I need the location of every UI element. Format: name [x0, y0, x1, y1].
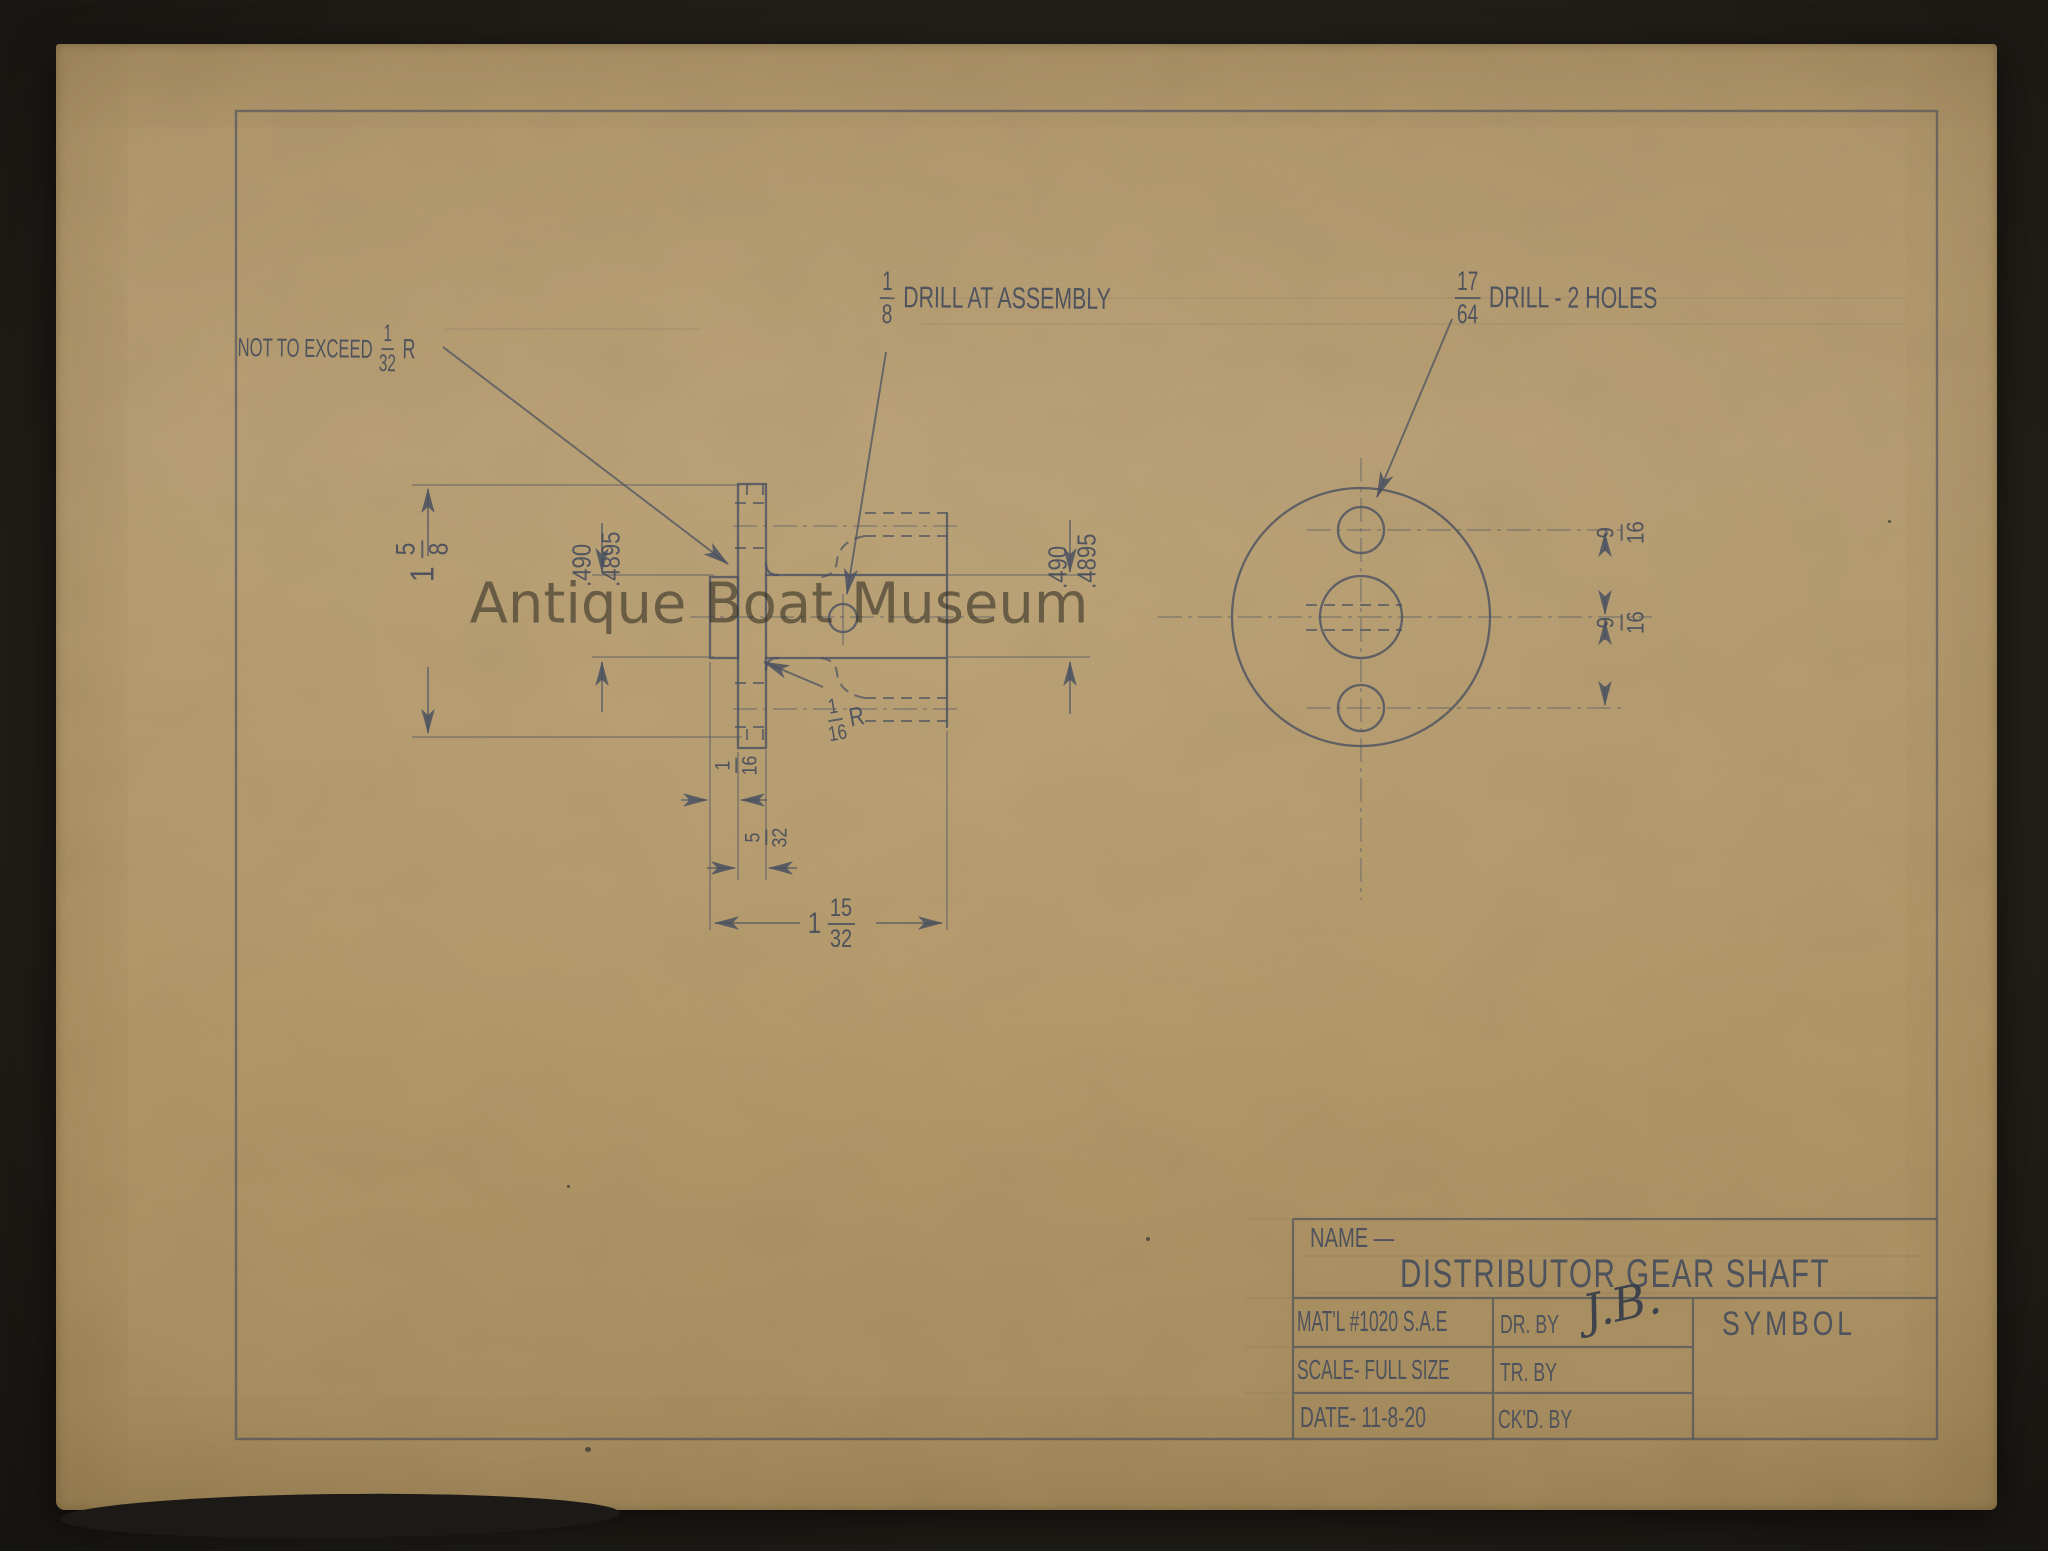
dim-flange-thickness: 5 32	[741, 828, 790, 848]
title-block-symbol-label: SYMBOL	[1722, 1305, 1856, 1344]
end-view	[1158, 458, 1652, 900]
fraction-9-16-lower: 9 16	[1595, 611, 1649, 634]
title-block-name-label: NAME —	[1310, 1222, 1394, 1254]
dim-hole-offset-lower: 9 16	[1593, 611, 1649, 634]
scanned-drawing: NOT TO EXCEED 1 32 R 1 8 DRILL AT ASSEMB…	[0, 0, 2048, 1551]
dim-flange-od: 1 5 8	[392, 540, 452, 582]
note-drill-two-holes-text: DRILL - 2 HOLES	[1489, 281, 1658, 316]
dim-stub-length: 1 16	[711, 756, 760, 776]
paper-speck	[585, 1447, 591, 1452]
title-block-traced-by-label: TR. BY	[1500, 1357, 1557, 1388]
note-fillet-limit: NOT TO EXCEED 1 32 R	[237, 320, 416, 376]
paper-speck	[1146, 1237, 1150, 1241]
note-drill-assembly-text: DRILL AT ASSEMBLY	[903, 281, 1111, 317]
paper-speck	[1888, 520, 1891, 523]
fraction-17-64: 17 64	[1455, 268, 1481, 328]
title-block-scale: SCALE- FULL SIZE	[1297, 1354, 1450, 1386]
title-block-drawn-by-label: DR. BY	[1500, 1309, 1559, 1340]
note-drill-assembly: 1 8 DRILL AT ASSEMBLY	[879, 268, 1111, 330]
watermark: Antique Boat Museum	[470, 572, 1089, 637]
fraction-1-32: 1 32	[379, 322, 397, 376]
dim-overall-length: 1 15 32	[808, 896, 855, 952]
fraction-1-8: 1 8	[879, 268, 894, 328]
title-block-checked-by-label: CK'D. BY	[1498, 1404, 1572, 1435]
fraction-15-32: 15 32	[828, 896, 855, 952]
title-block-material: MAT'L #1020 S.A.E	[1297, 1306, 1447, 1339]
note-fillet-limit-suffix: R	[402, 333, 415, 365]
fraction-9-16-upper: 9 16	[1595, 521, 1649, 544]
note-drill-two-holes: 17 64 DRILL - 2 HOLES	[1455, 268, 1658, 329]
fraction-5-8: 5 8	[392, 540, 452, 558]
fraction-5-32: 5 32	[742, 828, 790, 848]
title-block-date: DATE- 11-8-20	[1300, 1402, 1426, 1435]
dim-hole-offset-upper: 9 16	[1593, 521, 1649, 544]
fraction-1-16: 1 16	[712, 756, 760, 776]
lettering-guides	[445, 298, 1920, 1393]
paper-speck	[567, 1185, 570, 1188]
note-fillet-limit-text: NOT TO EXCEED	[237, 331, 372, 364]
dim-fillet-radius: 1 16 R	[822, 691, 868, 745]
